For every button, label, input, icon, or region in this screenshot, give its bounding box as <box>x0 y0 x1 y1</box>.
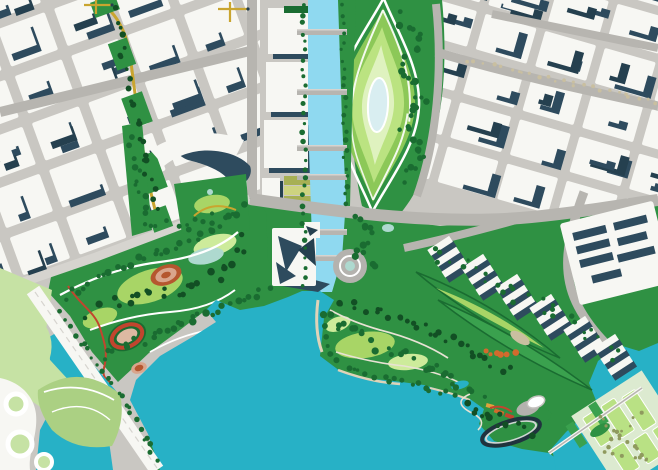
tree <box>520 71 523 74</box>
tree <box>398 316 403 321</box>
tree <box>161 294 166 299</box>
tree <box>392 376 397 381</box>
tree <box>550 307 555 312</box>
tree <box>438 391 442 395</box>
tree <box>127 262 134 269</box>
tree <box>202 309 210 317</box>
tree <box>409 107 416 114</box>
tree <box>386 379 392 385</box>
tree <box>354 247 360 253</box>
tree <box>362 371 367 376</box>
tree <box>69 286 74 291</box>
tree <box>304 230 308 234</box>
tree <box>141 256 146 261</box>
tree <box>143 222 147 226</box>
tree <box>591 84 595 88</box>
tree <box>125 67 129 71</box>
tree <box>300 192 305 197</box>
tree <box>301 111 305 115</box>
tree <box>433 246 438 251</box>
tree <box>151 335 157 341</box>
tree <box>529 432 536 439</box>
tree <box>625 440 629 444</box>
tree <box>409 113 414 118</box>
tree <box>159 252 163 256</box>
tree <box>361 250 366 255</box>
tree <box>327 351 333 357</box>
tree <box>550 313 555 318</box>
tree <box>299 129 305 135</box>
map-detail <box>246 7 249 10</box>
tree <box>304 159 307 162</box>
tree <box>399 378 404 383</box>
tree <box>632 416 635 419</box>
tree <box>143 193 149 199</box>
tree <box>143 210 149 216</box>
tree <box>407 164 414 171</box>
tree <box>359 330 365 336</box>
tree <box>406 76 411 81</box>
tree <box>410 27 415 32</box>
tree <box>371 375 377 381</box>
tree <box>428 332 432 336</box>
tree <box>149 224 154 229</box>
tree <box>502 421 508 427</box>
tree <box>572 81 575 84</box>
tree <box>221 265 228 272</box>
tree <box>356 368 359 371</box>
tree <box>352 253 359 260</box>
tree <box>301 58 305 62</box>
tree <box>472 410 478 416</box>
tree <box>442 370 448 376</box>
tree <box>484 280 487 283</box>
tree <box>342 41 346 45</box>
tree <box>234 247 240 253</box>
masterplan-image <box>0 0 658 470</box>
tree <box>357 216 363 222</box>
tree <box>480 414 484 418</box>
tree <box>620 454 624 458</box>
tree <box>117 303 122 308</box>
tree <box>542 311 546 315</box>
tree <box>303 122 306 125</box>
tree <box>207 268 215 276</box>
tree <box>119 26 123 30</box>
tree <box>551 303 555 307</box>
tree <box>235 297 242 304</box>
tree <box>142 158 146 162</box>
tree <box>155 459 159 463</box>
tree <box>352 306 356 310</box>
tree <box>210 313 215 318</box>
tree <box>496 424 500 428</box>
tree <box>127 410 132 415</box>
tree <box>609 437 613 441</box>
tree <box>466 343 470 347</box>
tree <box>464 400 471 407</box>
tree <box>178 321 184 327</box>
tree <box>344 202 349 207</box>
tree <box>109 348 114 353</box>
tree <box>256 287 261 292</box>
tree <box>435 260 440 265</box>
tree <box>363 309 369 315</box>
tree <box>410 81 414 85</box>
tree <box>610 358 615 363</box>
tree <box>405 319 410 324</box>
tree <box>129 134 135 140</box>
tree <box>653 102 657 106</box>
tree <box>416 149 421 154</box>
tree <box>163 248 170 255</box>
tree <box>352 214 358 220</box>
tree <box>541 297 545 301</box>
tree <box>150 196 156 202</box>
tree <box>241 201 248 208</box>
tree <box>300 101 305 106</box>
tree <box>174 247 178 251</box>
tree <box>467 258 470 261</box>
tree <box>412 356 417 361</box>
tree <box>180 292 186 298</box>
tree <box>106 376 111 381</box>
tree <box>342 76 347 81</box>
interchange-loop <box>6 394 26 414</box>
tree <box>367 225 373 231</box>
tree <box>143 438 146 441</box>
tree <box>508 284 512 288</box>
tree <box>304 266 308 270</box>
tree <box>598 89 602 93</box>
yard-row <box>284 186 312 195</box>
tree <box>402 180 406 184</box>
tree <box>215 309 221 315</box>
tree <box>413 95 417 99</box>
hall-roof <box>264 120 308 168</box>
tree <box>301 212 305 216</box>
tree <box>482 62 485 65</box>
tree <box>434 363 439 368</box>
tree <box>347 365 353 371</box>
tree <box>120 31 126 37</box>
tree <box>510 300 516 306</box>
tree <box>340 48 343 51</box>
tree <box>301 33 305 37</box>
tree <box>132 164 139 171</box>
tree <box>526 292 530 296</box>
tree <box>474 266 477 269</box>
tree <box>448 373 454 379</box>
tree <box>369 230 374 235</box>
tree <box>647 98 650 101</box>
tree <box>96 274 100 278</box>
tree <box>320 311 327 318</box>
tree <box>99 369 104 374</box>
tree <box>83 316 88 321</box>
tree <box>344 105 347 108</box>
tree <box>228 261 236 269</box>
interchange-loop <box>36 454 52 470</box>
tree <box>616 348 620 352</box>
tree <box>302 237 307 242</box>
tree <box>299 221 304 226</box>
tree <box>353 368 357 372</box>
tree <box>488 365 492 369</box>
tree <box>153 224 157 228</box>
tree <box>368 337 374 343</box>
tree <box>583 331 586 334</box>
tree <box>497 411 502 416</box>
tree <box>483 272 487 276</box>
tree <box>137 190 141 194</box>
canal-bridge-edge <box>297 89 347 91</box>
tree <box>126 86 132 92</box>
tree <box>343 67 346 70</box>
tree <box>208 227 213 232</box>
tree <box>603 450 607 454</box>
tree <box>303 94 307 98</box>
tree <box>569 313 574 318</box>
tree <box>116 21 120 25</box>
tree <box>397 127 402 132</box>
tree <box>165 328 171 334</box>
tree <box>346 174 349 177</box>
tree <box>75 290 81 296</box>
tree <box>300 20 305 25</box>
tree <box>424 322 428 326</box>
tree <box>341 14 345 18</box>
tree <box>528 72 531 75</box>
tree <box>81 287 86 292</box>
tree <box>644 458 647 461</box>
tree <box>400 62 405 67</box>
tree <box>143 342 148 347</box>
tree <box>635 447 639 451</box>
tree <box>547 75 551 79</box>
tree <box>383 374 389 380</box>
tree <box>156 328 162 334</box>
tree <box>609 345 613 349</box>
tree <box>242 298 246 302</box>
tree <box>516 421 521 426</box>
tree <box>410 136 417 143</box>
tree <box>241 249 246 254</box>
tree <box>637 97 641 101</box>
tree <box>300 139 306 145</box>
tree <box>139 427 144 432</box>
tree <box>352 325 359 332</box>
tree <box>197 230 204 237</box>
tree <box>338 302 343 307</box>
tree <box>341 113 346 118</box>
tree <box>342 156 345 159</box>
tree <box>85 346 90 351</box>
tree <box>127 76 133 82</box>
tree <box>470 353 476 359</box>
tree <box>239 232 244 237</box>
tree <box>303 167 308 172</box>
tree <box>112 295 118 301</box>
canal-bridge-edge <box>297 145 347 147</box>
tree <box>132 156 137 161</box>
tree <box>135 254 142 261</box>
tree <box>618 437 621 440</box>
tree <box>109 381 113 385</box>
tree <box>134 417 140 423</box>
tree <box>147 441 153 447</box>
tree <box>303 40 306 43</box>
tree <box>217 224 222 229</box>
tree <box>302 184 306 188</box>
tree <box>582 83 586 87</box>
tree <box>362 223 369 230</box>
tree <box>82 341 87 346</box>
tree <box>484 412 490 418</box>
tree <box>341 122 344 125</box>
mini-pond <box>207 189 213 195</box>
interchange-loop <box>8 432 32 456</box>
tree <box>63 318 67 322</box>
tree <box>583 337 586 340</box>
tree <box>448 261 451 264</box>
tree <box>419 95 423 99</box>
tree <box>620 430 623 433</box>
tree <box>189 318 197 326</box>
tree <box>301 74 305 78</box>
tree <box>396 22 403 29</box>
tree <box>73 333 78 338</box>
tree <box>572 320 577 325</box>
tree <box>57 309 62 314</box>
tree <box>453 393 458 398</box>
tree <box>522 425 526 429</box>
tree <box>629 425 632 428</box>
tree <box>450 333 457 340</box>
tree <box>146 289 152 295</box>
tree <box>602 418 605 421</box>
tree <box>537 75 541 79</box>
tree <box>411 383 415 387</box>
tree <box>194 280 200 286</box>
tree <box>398 9 403 14</box>
tree <box>416 35 422 41</box>
tree <box>562 78 566 82</box>
tree <box>141 139 147 145</box>
tree <box>209 220 215 226</box>
tree <box>499 65 502 68</box>
tree <box>458 341 464 347</box>
canal-bridge-edge <box>297 29 347 31</box>
tree <box>162 286 167 291</box>
tree <box>606 445 610 449</box>
tree <box>302 3 306 7</box>
tree <box>200 219 205 224</box>
map-detail <box>110 3 113 6</box>
tree <box>344 148 349 153</box>
tree <box>304 148 308 152</box>
tree <box>186 227 192 233</box>
tree <box>103 357 107 361</box>
tree <box>223 215 228 220</box>
tree <box>113 5 119 11</box>
tree <box>123 46 127 50</box>
tree <box>608 89 611 92</box>
tree <box>481 355 487 361</box>
tree <box>128 300 135 307</box>
tree <box>423 98 430 105</box>
tree <box>136 120 142 126</box>
tree <box>640 411 644 415</box>
tree <box>401 349 406 354</box>
tree <box>131 103 135 107</box>
tree <box>484 348 489 353</box>
tree <box>511 68 514 71</box>
tree <box>372 263 379 270</box>
tree <box>416 139 423 146</box>
tree <box>185 223 189 227</box>
tree <box>508 365 513 370</box>
tree <box>164 218 169 223</box>
tree <box>495 283 500 288</box>
tree <box>304 246 307 249</box>
tree <box>443 388 448 393</box>
masterplan-map <box>0 0 658 470</box>
tree <box>360 241 367 248</box>
tree <box>85 282 90 287</box>
tree <box>300 13 306 19</box>
tree <box>323 334 329 340</box>
tree <box>444 340 448 344</box>
tree <box>492 62 496 66</box>
tree <box>177 224 182 229</box>
tree <box>95 363 98 366</box>
tree <box>300 204 306 210</box>
tree <box>246 294 252 300</box>
tree <box>326 344 330 348</box>
tree <box>634 456 637 459</box>
tree <box>154 248 159 253</box>
tree <box>437 250 442 255</box>
tree <box>327 311 334 318</box>
tree <box>389 352 394 357</box>
tree <box>210 211 214 215</box>
tree <box>303 175 308 180</box>
tree <box>343 95 348 100</box>
tree <box>413 325 419 331</box>
tree <box>504 351 510 357</box>
tree <box>97 301 101 305</box>
tree <box>638 456 642 460</box>
tree <box>301 284 305 288</box>
tree <box>218 303 224 309</box>
tree <box>426 388 431 393</box>
tree <box>90 356 93 359</box>
tree <box>554 80 557 83</box>
tree <box>118 54 123 59</box>
tree <box>341 321 347 327</box>
tree <box>604 424 607 427</box>
tree <box>342 31 346 35</box>
tree <box>303 275 308 280</box>
tree <box>142 172 147 177</box>
tree <box>494 350 500 356</box>
tree <box>618 91 621 94</box>
tree <box>343 137 349 143</box>
tree <box>195 311 200 316</box>
tree <box>134 292 141 299</box>
tree <box>300 68 303 71</box>
